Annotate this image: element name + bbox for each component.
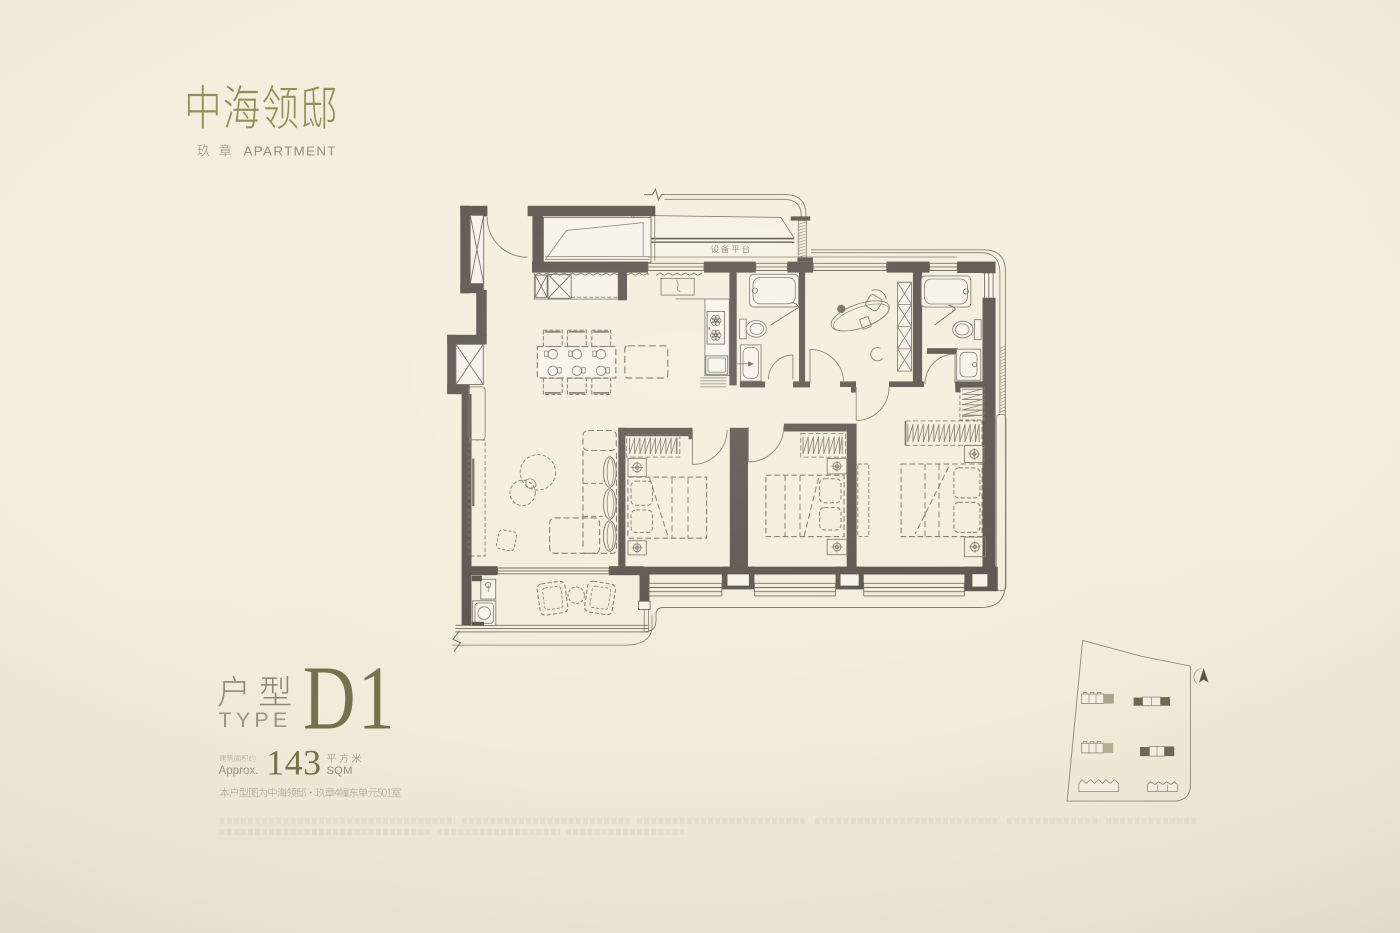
svg-text:Approx.: Approx. bbox=[219, 764, 259, 777]
svg-text:SQM: SQM bbox=[327, 765, 353, 777]
svg-text:D1: D1 bbox=[303, 648, 397, 748]
svg-text:APARTMENT: APARTMENT bbox=[244, 144, 337, 159]
svg-text:143: 143 bbox=[266, 742, 321, 782]
svg-text:TYPE: TYPE bbox=[219, 708, 292, 732]
